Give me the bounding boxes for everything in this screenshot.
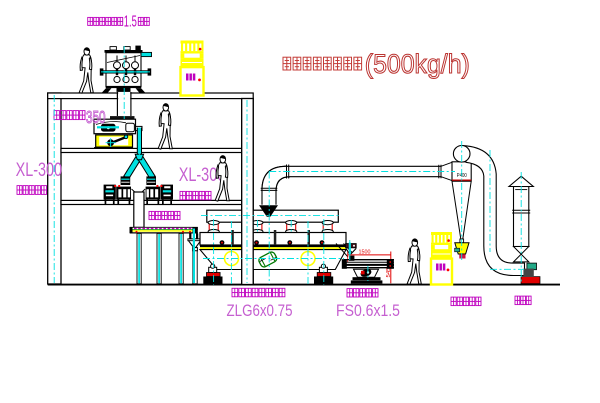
svg-text:1.5: 1.5 — [124, 13, 137, 30]
svg-text:FS0.6x1.5: FS0.6x1.5 — [336, 301, 400, 320]
svg-text:ZLG6x0.75: ZLG6x0.75 — [227, 301, 293, 320]
svg-text:545: 545 — [386, 268, 392, 278]
svg-text:(500kg/h): (500kg/h) — [365, 49, 470, 79]
svg-text:1500: 1500 — [359, 250, 371, 256]
svg-text:XL-300: XL-300 — [16, 160, 62, 181]
svg-text:350: 350 — [86, 107, 106, 127]
